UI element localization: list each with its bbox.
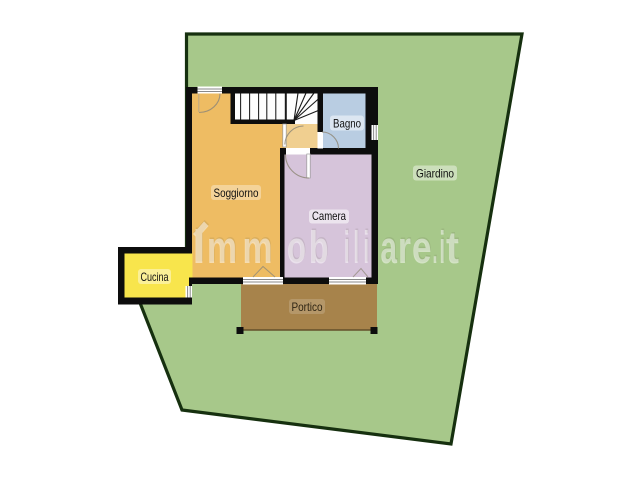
svg-text:o: o xyxy=(287,222,306,273)
svg-text:i: i xyxy=(344,222,350,273)
svg-text:a: a xyxy=(381,222,398,273)
svg-text:i: i xyxy=(440,222,446,273)
svg-text:Cucina: Cucina xyxy=(141,270,169,284)
svg-text:Portico: Portico xyxy=(292,300,323,314)
svg-text:Giardino: Giardino xyxy=(416,167,454,181)
svg-text:m: m xyxy=(207,222,237,273)
svg-text:r: r xyxy=(398,222,411,273)
svg-text:t: t xyxy=(446,222,459,273)
svg-text:l: l xyxy=(354,222,360,273)
svg-text:m: m xyxy=(243,222,273,273)
svg-text:Bagno: Bagno xyxy=(333,117,361,131)
svg-text:i: i xyxy=(364,222,370,273)
svg-text:Soggiorno: Soggiorno xyxy=(214,186,259,200)
svg-text:Camera: Camera xyxy=(312,209,346,223)
svg-text:e: e xyxy=(412,222,432,273)
svg-text:b: b xyxy=(309,222,329,273)
svg-text:.: . xyxy=(433,222,438,273)
